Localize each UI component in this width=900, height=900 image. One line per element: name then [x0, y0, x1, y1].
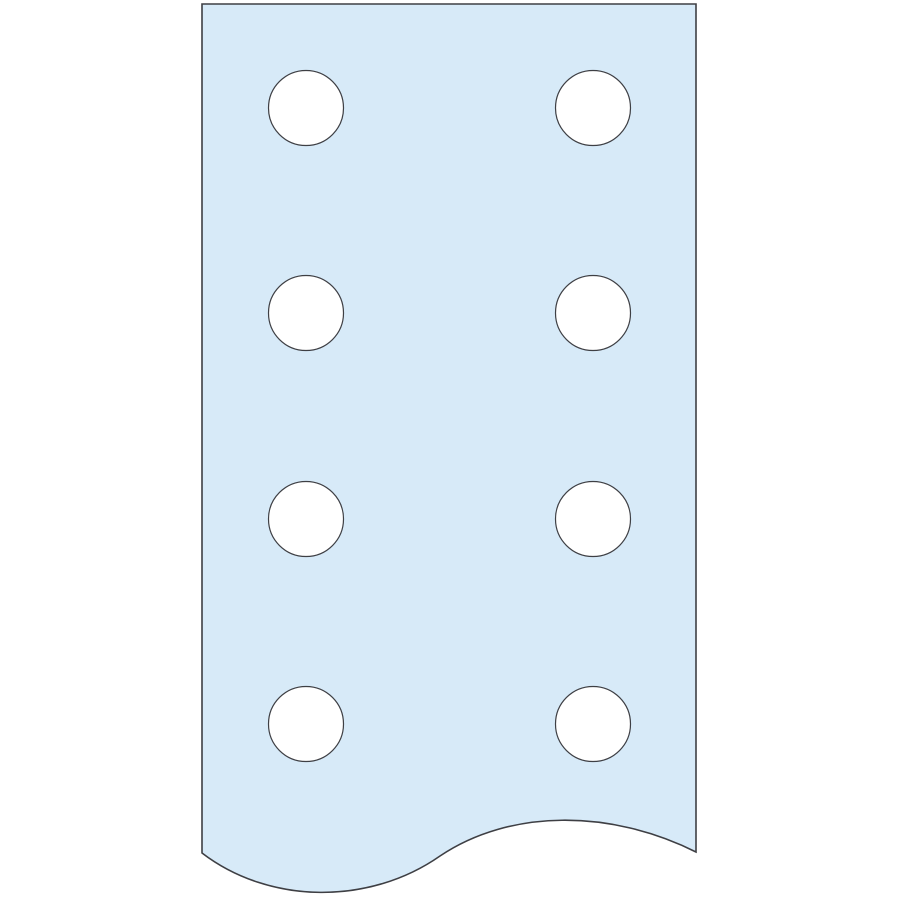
illustration-canvas — [0, 0, 900, 900]
mounting-hole — [556, 71, 631, 146]
mounting-hole — [269, 687, 344, 762]
bar-outline — [202, 4, 696, 892]
mounting-hole — [556, 482, 631, 557]
mounting-hole — [269, 71, 344, 146]
mounting-hole — [556, 687, 631, 762]
mounting-hole — [556, 276, 631, 351]
perforated-bar-svg — [0, 0, 900, 900]
mounting-hole — [269, 276, 344, 351]
mounting-hole — [269, 482, 344, 557]
